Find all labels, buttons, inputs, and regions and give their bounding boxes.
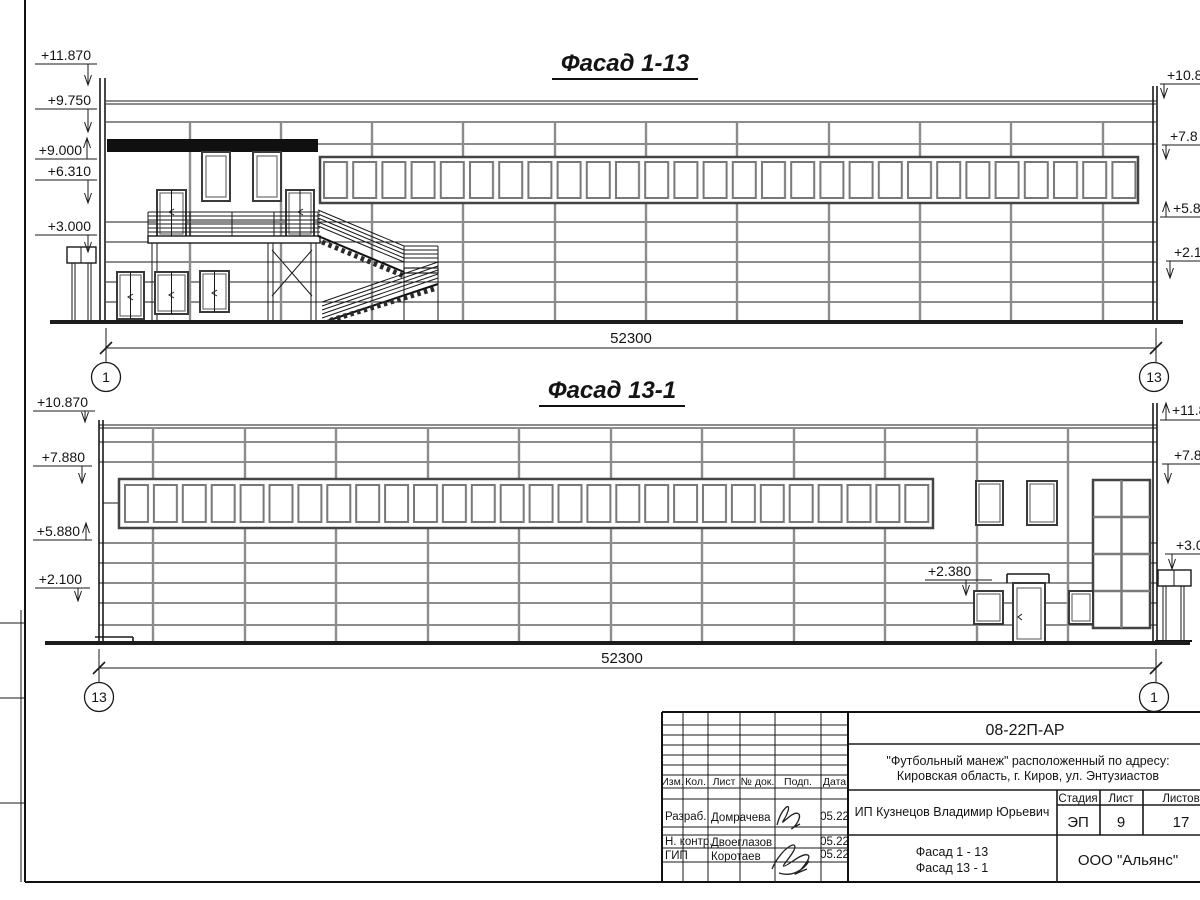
upper-window	[1027, 481, 1057, 525]
axis-number: 1	[1150, 689, 1158, 705]
elevation-mark: +5.8	[1160, 200, 1200, 217]
elevation-mark: +7.880	[33, 449, 92, 483]
col-header-izm: Изм.	[661, 776, 684, 788]
sheets-total: 17	[1173, 814, 1190, 831]
entrance-door	[155, 272, 188, 314]
col-header-ndok: № док.	[741, 776, 775, 788]
object-address-line1: "Футбольный манеж" расположенный по адре…	[886, 754, 1169, 768]
elevation-value: +11.8	[1172, 402, 1200, 418]
elevation-value: +2.100	[39, 571, 82, 587]
elevation-mark: +9.750	[35, 92, 97, 132]
sheet-label: Лист	[1109, 793, 1135, 805]
upper-window	[976, 481, 1003, 525]
exterior-stair	[318, 210, 438, 322]
upper-window	[202, 152, 230, 201]
canopy-band	[107, 139, 318, 152]
facade-drawing-svg: Фасад 1-13	[0, 0, 1200, 900]
elevation-value: +9.000	[39, 142, 82, 158]
sheet-frame	[0, 0, 1200, 882]
elevation-mark: +9.000	[35, 138, 97, 159]
upper-window	[253, 152, 281, 201]
elevation-mark: +11.8	[1160, 402, 1200, 420]
elevation-mark: +6.310	[35, 163, 97, 203]
elevation-mark: +7.8	[1162, 447, 1200, 483]
elevation-mark: +2.100	[35, 571, 90, 601]
sign-role: Н. контр.	[665, 836, 712, 848]
signature	[777, 807, 800, 829]
facade-1-13-drawing: Фасад 1-13	[35, 47, 1200, 392]
entrance-door	[117, 272, 144, 319]
sheets-label: Листов	[1162, 793, 1199, 805]
sheet-number: 9	[1117, 814, 1125, 831]
col-header-list: Лист	[713, 776, 736, 788]
dimension-value: 52300	[601, 650, 643, 667]
entrance-door	[200, 271, 229, 312]
elevation-value: +7.880	[42, 449, 85, 465]
curtain-wall-glazing	[1093, 480, 1150, 628]
door-canopy	[1007, 574, 1049, 583]
drawing-sheet: Фасад 1-13	[0, 0, 1200, 900]
stage-value: ЭП	[1067, 814, 1089, 831]
col-header-podp: Подп.	[784, 776, 812, 788]
elevation-value: +2.380	[928, 563, 971, 579]
col-header-kol: Кол.	[685, 776, 706, 788]
left-pedestal	[67, 247, 96, 321]
object-address-line2: Кировская область, г. Киров, ул. Энтузиа…	[897, 769, 1159, 783]
elevation-value: +3.0	[1176, 537, 1200, 553]
sign-role: Разраб.	[665, 811, 706, 823]
column-lines	[153, 429, 1068, 641]
elevation-value: +9.750	[48, 92, 91, 108]
dimension-value: 52300	[610, 330, 652, 347]
sign-role: ГИП	[665, 850, 688, 862]
elevation-value: +6.310	[48, 163, 91, 179]
sign-date: 05.22	[820, 836, 849, 848]
drawing-title-line2: Фасад 13 - 1	[916, 861, 988, 875]
sign-name: Коротаев	[711, 851, 761, 863]
elevation-mark: +11.870	[35, 47, 97, 85]
sign-name: Двоеглазов	[711, 837, 772, 849]
company-name: ООО "Альянс"	[1078, 852, 1178, 869]
elevation-mark: +3.0	[1165, 537, 1200, 569]
client-name: ИП Кузнецов Владимир Юрьевич	[855, 805, 1050, 819]
elevation-mark: +3.000	[35, 218, 97, 252]
entrance-door	[1013, 583, 1045, 642]
facade-13-1-drawing: Фасад 13-1	[33, 377, 1200, 712]
balcony-door	[157, 190, 186, 237]
elevation-value: +5.880	[37, 523, 80, 539]
balcony-door	[286, 190, 314, 237]
elevation-mark: +10.870	[33, 394, 95, 422]
elevation-value: +7.8	[1174, 447, 1200, 463]
doc-code: 08-22П-АР	[985, 722, 1064, 739]
elevation-mark: +2.1	[1166, 244, 1200, 278]
facade-1-13-title: Фасад 1-13	[561, 50, 690, 77]
ground-window	[1069, 591, 1093, 624]
sign-date: 05.22	[820, 811, 849, 823]
drawing-title-line1: Фасад 1 - 13	[916, 845, 988, 859]
axis-number: 13	[1146, 369, 1162, 385]
sign-date: 05.22	[820, 849, 849, 861]
facade-13-1-title: Фасад 13-1	[548, 377, 676, 404]
axis-number: 13	[91, 689, 107, 705]
sign-name: Домрачева	[711, 812, 771, 824]
elevation-mark: +5.880	[33, 523, 92, 540]
window-ribbon	[119, 479, 933, 528]
elevation-mark: +10.8	[1160, 67, 1200, 98]
signature	[772, 845, 809, 874]
col-header-date: Дата	[823, 776, 846, 788]
axis-number: 1	[102, 369, 110, 385]
stage-label: Стадия	[1058, 793, 1097, 805]
elevation-value: +10.870	[37, 394, 88, 410]
ground-window	[974, 591, 1003, 624]
title-block: 08-22П-АР "Футбольный манеж" расположенн…	[661, 712, 1200, 882]
right-pedestal	[1155, 570, 1192, 641]
elevation-value: +3.000	[48, 218, 91, 234]
elevation-mark: +7.8	[1162, 128, 1200, 159]
elevation-value: +5.8	[1173, 200, 1200, 216]
window-ribbon	[320, 157, 1138, 203]
elevation-value: +10.8	[1167, 67, 1200, 83]
elevation-value: +7.8	[1170, 128, 1198, 144]
elevation-value: +2.1	[1174, 244, 1200, 260]
elevation-value: +11.870	[41, 47, 91, 63]
dimension-line: 52300 13 1	[85, 649, 1169, 712]
